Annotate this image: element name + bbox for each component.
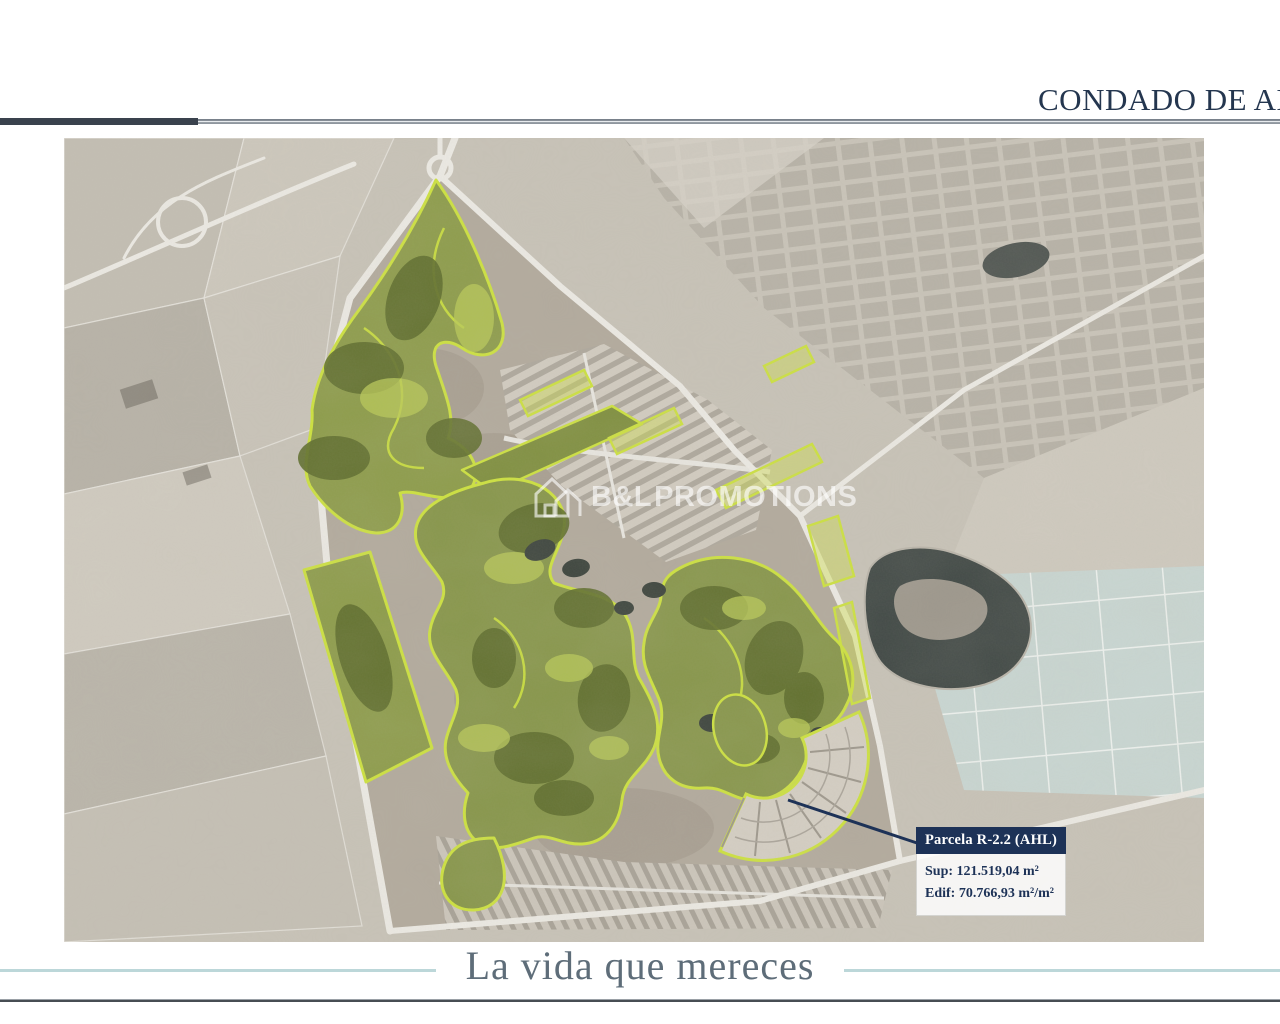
satellite-map: B&L PROMOTIONS Parcela R-2.2 (AHL) Sup: …: [64, 138, 1204, 942]
footer-rule: [0, 999, 1280, 1002]
watermark: B&L PROMOTIONS: [532, 474, 857, 520]
header-rule: [0, 119, 1280, 124]
satellite-map-art: [64, 138, 1204, 942]
tagline: La vida que mereces: [436, 942, 845, 989]
watermark-text: B&L PROMOTIONS: [591, 481, 857, 514]
promo-slide: CONDADO DE ALH: [0, 0, 1280, 1024]
tagline-row: La vida que mereces: [0, 942, 1280, 989]
header-rule-dark-segment: [0, 118, 198, 125]
parcel-surface-value: Sup: 121.519,04 m²: [925, 861, 1057, 883]
parcel-buildable-value: Edif: 70.766,93 m²/m²: [925, 883, 1057, 905]
parcel-callout-title: Parcela R-2.2 (AHL): [916, 827, 1066, 854]
parcel-callout: Parcela R-2.2 (AHL) Sup: 121.519,04 m² E…: [916, 827, 1066, 916]
parcel-callout-body: Sup: 121.519,04 m² Edif: 70.766,93 m²/m²: [916, 854, 1066, 916]
house-logo-icon: [532, 474, 584, 520]
page-title: CONDADO DE ALH: [1038, 82, 1280, 118]
